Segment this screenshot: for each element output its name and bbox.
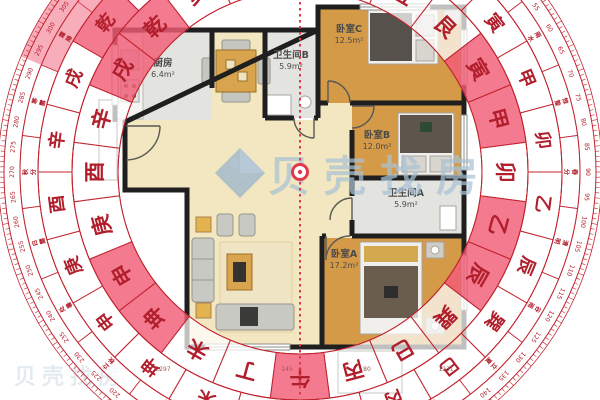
tick [586, 249, 592, 251]
tick [545, 338, 548, 340]
tick [38, 316, 41, 318]
degree-label-260: 260 [12, 215, 21, 228]
tick [6, 228, 10, 229]
side-table [196, 217, 211, 232]
tick [4, 218, 8, 219]
tick [564, 36, 568, 38]
sofa-cushion [240, 307, 258, 326]
tick [12, 254, 16, 255]
solar-term-char: 分 [563, 169, 571, 176]
tick [53, 342, 58, 345]
degree-label-290: 290 [25, 67, 36, 81]
tick [559, 27, 562, 29]
degree-label-255: 255 [17, 240, 27, 253]
degree-label-285: 285 [17, 91, 27, 104]
tick [9, 244, 13, 245]
tick [38, 320, 43, 323]
tick [556, 21, 561, 24]
degree-label-140: 140 [478, 386, 492, 399]
tick [3, 223, 9, 224]
tick [15, 263, 19, 264]
table-decor [233, 262, 246, 282]
degree-label-125: 125 [529, 330, 542, 344]
tick [554, 17, 557, 19]
tick [16, 74, 20, 75]
tick [564, 306, 568, 308]
degree-label-95: 95 [583, 193, 591, 202]
tick [64, 354, 67, 356]
dimension-label: 80 [363, 366, 371, 373]
tick [561, 311, 565, 313]
room-area-kitchen: 6.4m² [151, 70, 175, 79]
tick [587, 99, 591, 100]
tick [592, 120, 598, 121]
degree-label-60: 60 [544, 23, 554, 33]
mountain-char-inner-酉: 酉 [83, 162, 107, 183]
tick [16, 273, 22, 275]
armchair [217, 214, 233, 236]
tick [559, 316, 562, 318]
tick [566, 40, 570, 42]
tick [566, 302, 570, 304]
tick [551, 329, 554, 331]
solar-term-char: 秋 [22, 168, 30, 176]
dining-chair [222, 40, 250, 50]
tick [3, 213, 7, 214]
tick [523, 366, 526, 369]
tick [572, 288, 576, 290]
degree-label-280: 280 [12, 116, 21, 129]
tick [509, 381, 513, 385]
tick [7, 234, 11, 235]
tick [16, 69, 22, 71]
tick [580, 268, 584, 269]
tick [9, 99, 13, 100]
room-label-bath_b: 卫生间B [273, 49, 309, 61]
tick [22, 60, 26, 61]
tick [13, 259, 17, 260]
mountain-char-outer-酉: 酉 [46, 194, 69, 215]
tick [570, 292, 574, 294]
tick [583, 259, 587, 260]
degree-label-245: 245 [34, 287, 45, 301]
tick [576, 64, 580, 65]
room-area-bed_a: 17.2m² [330, 261, 359, 270]
tick [516, 374, 519, 377]
tick [539, 346, 542, 348]
tick [527, 362, 532, 366]
tick [57, 346, 60, 348]
room-label-bed_c: 卧室C [336, 23, 362, 35]
tick [585, 254, 589, 255]
bathtub [267, 95, 291, 115]
tick [24, 288, 28, 290]
tick [585, 89, 589, 90]
bed-decor [420, 122, 432, 132]
tick [568, 297, 573, 300]
tick [580, 74, 584, 75]
mountain-char-outer-乙: 乙 [531, 194, 554, 215]
tick [20, 64, 24, 65]
tick [536, 350, 539, 352]
tick [22, 283, 26, 284]
tick [591, 115, 595, 116]
room-label-bed_b: 卧室B [364, 129, 390, 141]
tick [15, 79, 19, 80]
degree-label-270: 270 [9, 166, 16, 178]
degree-label-55: 55 [530, 2, 540, 13]
degree-label-135: 135 [497, 369, 510, 382]
tick [43, 324, 46, 326]
tick [35, 311, 39, 313]
tick [20, 278, 24, 279]
tick [561, 31, 565, 33]
tick [592, 125, 596, 126]
tick [0, 198, 5, 199]
tick [551, 13, 554, 15]
sofa-left [192, 238, 214, 302]
tick [574, 283, 578, 284]
tick [103, 395, 106, 398]
tick [570, 50, 574, 52]
dimension-label: 1231 [438, 366, 453, 373]
degree-label-80: 80 [579, 118, 587, 127]
tick [595, 198, 600, 199]
tick [8, 105, 12, 106]
tick [498, 392, 501, 395]
degree-label-275: 275 [10, 141, 18, 153]
tick [574, 60, 578, 61]
tick [578, 69, 584, 71]
tick [533, 354, 536, 356]
room-label-bed_a: 卧室A [331, 248, 358, 260]
tick [586, 94, 592, 96]
degree-label-100: 100 [579, 215, 588, 228]
tick [26, 292, 30, 294]
tick [572, 55, 576, 57]
tick [3, 130, 7, 131]
degree-label-105: 105 [573, 240, 583, 253]
degree-label-75: 75 [573, 93, 582, 102]
tick [530, 358, 533, 361]
tick [30, 302, 34, 304]
tick [583, 84, 587, 85]
tick [513, 378, 516, 381]
tick [576, 278, 580, 279]
degree-label-265: 265 [10, 191, 18, 203]
bed-decor [384, 286, 398, 298]
degree-label-85: 85 [583, 143, 591, 152]
mountain-char-outer-辛: 辛 [45, 130, 69, 151]
tick [591, 228, 595, 229]
tick [0, 146, 5, 147]
solar-term-char: 春 [571, 168, 579, 176]
tick [582, 79, 586, 80]
room-area-bath_a: 5.9m² [394, 200, 418, 209]
tick [8, 94, 14, 96]
tick [578, 273, 584, 275]
tick [13, 84, 17, 85]
tick [542, 0, 547, 2]
tick [7, 110, 11, 111]
tick [3, 120, 9, 121]
solar-term-char: 分 [30, 168, 38, 175]
degree-label-230: 230 [73, 350, 86, 364]
toilet [440, 206, 456, 230]
tick [48, 333, 51, 335]
fengshui-compass-floorplan: 厨房6.4m²卫生间B5.9m²卧室C12.5m²卧室B12.0m²卫生间A5.… [0, 0, 600, 400]
tick [6, 115, 10, 116]
degree-label-70: 70 [566, 69, 575, 79]
tick [592, 223, 598, 224]
tick [548, 9, 551, 11]
tick [67, 358, 70, 361]
scene-canvas: 厨房6.4m²卫生间B5.9m²卧室C12.5m²卧室B12.0m²卫生间A5.… [0, 0, 600, 400]
bed-blanket [400, 115, 452, 153]
dimension-label: 2297 [155, 366, 170, 373]
mountain-char-inner-卯: 卯 [493, 162, 517, 183]
tick [16, 268, 20, 269]
tick [8, 239, 12, 240]
degree-label-120: 120 [543, 309, 555, 323]
tick [8, 249, 14, 251]
degree-label-90: 90 [584, 168, 591, 176]
tick [595, 146, 600, 147]
tick [494, 395, 497, 398]
degree-label-110: 110 [565, 264, 576, 278]
tick [33, 306, 37, 308]
tick [548, 333, 551, 335]
tick [592, 218, 596, 219]
room-area-bed_b: 12.0m² [363, 142, 392, 151]
degree-label-130: 130 [514, 350, 527, 364]
tick [60, 350, 63, 352]
degree-label-65: 65 [556, 45, 566, 55]
tick [590, 110, 594, 111]
tick [588, 239, 592, 240]
armchair [239, 214, 255, 236]
tick [593, 213, 597, 214]
side-table [196, 303, 211, 318]
tick [590, 234, 594, 235]
tick [46, 329, 49, 331]
tick [26, 297, 31, 300]
tick [587, 244, 591, 245]
tick [593, 130, 597, 131]
degree-label-240: 240 [45, 309, 57, 323]
pillow-gold [364, 246, 418, 262]
tick [554, 324, 557, 326]
tick [542, 342, 547, 345]
tick [545, 4, 548, 6]
degree-label-235: 235 [58, 330, 71, 344]
tick [556, 320, 561, 323]
tick [506, 385, 509, 388]
tick [51, 338, 54, 340]
tick [502, 388, 505, 391]
dimension-label: 145 [281, 366, 293, 373]
tick [4, 125, 8, 126]
mountain-char-outer-卯: 卯 [531, 130, 554, 151]
tick [588, 105, 592, 106]
room-area-bed_c: 12.5m² [335, 36, 364, 45]
degree-label-115: 115 [555, 287, 566, 301]
tick [568, 44, 573, 47]
tick [520, 370, 523, 373]
degree-label-250: 250 [25, 264, 36, 278]
dining-chair [222, 92, 250, 102]
tick [12, 89, 16, 90]
tick [582, 263, 586, 264]
tick [99, 392, 102, 395]
